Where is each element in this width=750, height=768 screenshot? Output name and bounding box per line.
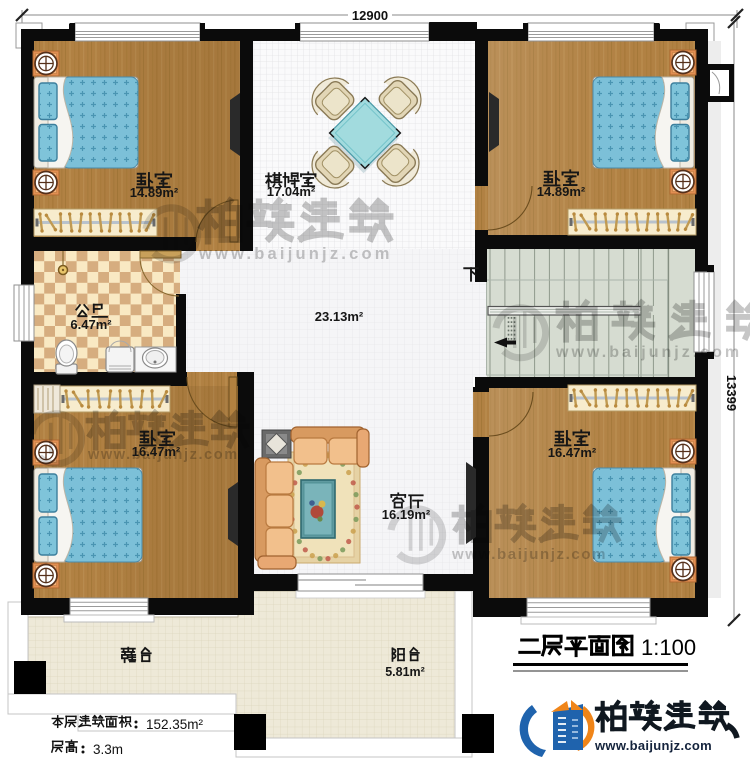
svg-text:14.89m²: 14.89m²: [537, 184, 586, 199]
svg-text:www.baijunjz.com: www.baijunjz.com: [451, 546, 607, 563]
svg-text:12900: 12900: [352, 8, 388, 23]
svg-text:152.35m²: 152.35m²: [146, 717, 204, 732]
svg-text:16.19m²: 16.19m²: [382, 507, 431, 522]
svg-text:14.89m²: 14.89m²: [130, 185, 179, 200]
svg-text:23.13m²: 23.13m²: [315, 309, 364, 324]
svg-text:6.47m²: 6.47m²: [70, 317, 112, 332]
svg-text:5.81m²: 5.81m²: [385, 665, 425, 679]
svg-text:13399: 13399: [724, 375, 739, 411]
svg-text:www.baijunjz.com: www.baijunjz.com: [555, 344, 742, 361]
svg-text:www.baijunjz.com: www.baijunjz.com: [594, 738, 712, 753]
svg-text:16.47m²: 16.47m²: [548, 445, 597, 460]
svg-text:16.47m²: 16.47m²: [132, 444, 181, 459]
svg-text:17.04m²: 17.04m²: [267, 184, 316, 199]
svg-text:www.baijunjz.com: www.baijunjz.com: [198, 245, 393, 263]
svg-text:1:100: 1:100: [641, 635, 696, 660]
svg-text:3.3m: 3.3m: [93, 742, 123, 757]
